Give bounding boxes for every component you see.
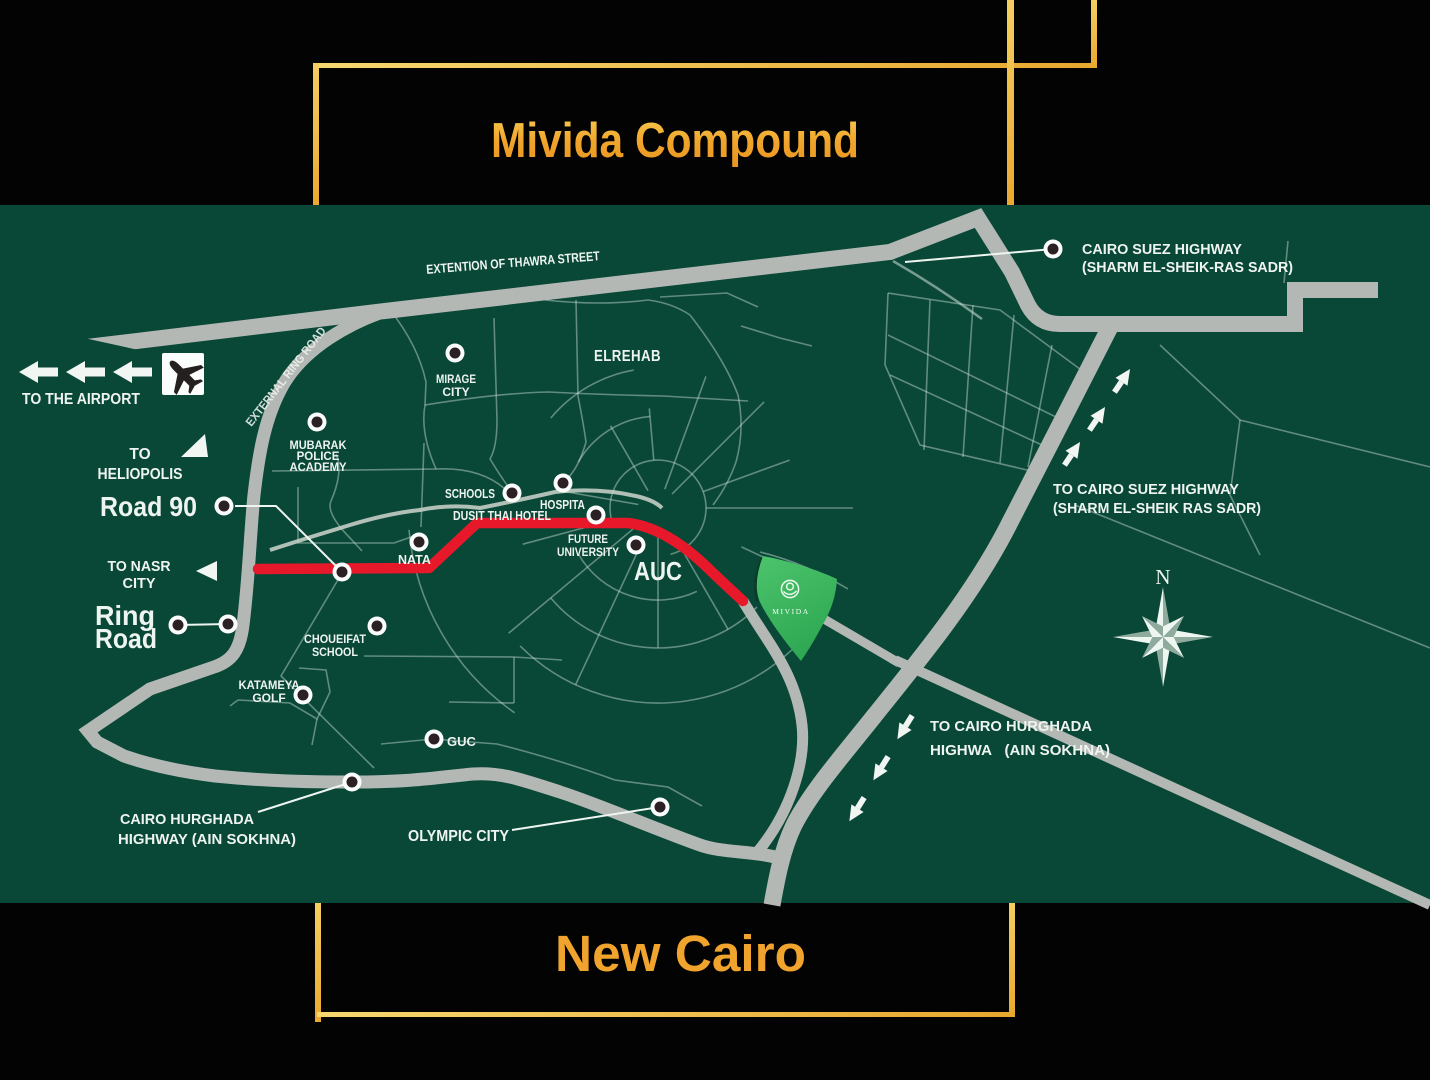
svg-text:N: N	[1155, 565, 1170, 589]
svg-text:MIVIDA: MIVIDA	[772, 607, 810, 616]
svg-text:HELIOPOLIS: HELIOPOLIS	[98, 466, 183, 483]
svg-text:CITY: CITY	[442, 385, 469, 399]
svg-text:UNIVERSITY: UNIVERSITY	[557, 545, 619, 559]
svg-text:NATA: NATA	[398, 553, 431, 567]
svg-text:Mivida Compound: Mivida Compound	[491, 114, 859, 168]
svg-text:TO NASR: TO NASR	[108, 559, 172, 575]
svg-text:CAIRO HURGHADA: CAIRO HURGHADA	[120, 811, 254, 828]
svg-text:TO: TO	[129, 446, 150, 463]
svg-text:KATAMEYA: KATAMEYA	[239, 678, 300, 692]
svg-text:CAIRO SUEZ HIGHWAY: CAIRO SUEZ HIGHWAY	[1082, 242, 1242, 258]
svg-text:HIGHWA (AIN SOKHNA): HIGHWA (AIN SOKHNA)	[930, 742, 1110, 759]
svg-text:CITY: CITY	[122, 576, 155, 592]
svg-text:Road: Road	[95, 623, 157, 654]
svg-text:New Cairo: New Cairo	[555, 925, 806, 982]
svg-text:TO CAIRO SUEZ HIGHWAY: TO CAIRO SUEZ HIGHWAY	[1053, 481, 1239, 498]
svg-text:Road 90: Road 90	[100, 491, 197, 522]
svg-text:ELREHAB: ELREHAB	[594, 348, 661, 365]
svg-text:DUSIT THAI HOTEL: DUSIT THAI HOTEL	[453, 509, 551, 523]
svg-text:MIRAGE: MIRAGE	[436, 372, 476, 386]
svg-text:OLYMPIC CITY: OLYMPIC CITY	[408, 828, 510, 845]
svg-text:SCHOOL: SCHOOL	[312, 645, 358, 659]
svg-text:SCHOOLS: SCHOOLS	[445, 487, 495, 501]
svg-text:GUC: GUC	[447, 734, 477, 749]
svg-text:GOLF: GOLF	[252, 691, 285, 705]
svg-text:CHOUEIFAT: CHOUEIFAT	[304, 632, 367, 646]
svg-text:(SHARM EL-SHEIK-RAS SADR): (SHARM EL-SHEIK-RAS SADR)	[1082, 260, 1293, 276]
svg-text:(SHARM EL-SHEIK RAS SADR): (SHARM EL-SHEIK RAS SADR)	[1053, 500, 1261, 517]
svg-text:HIGHWAY (AIN SOKHNA): HIGHWAY (AIN SOKHNA)	[118, 831, 296, 848]
svg-text:AUC: AUC	[634, 556, 682, 586]
svg-text:TO CAIRO HURGHADA: TO CAIRO HURGHADA	[930, 718, 1092, 735]
svg-text:ACADEMY: ACADEMY	[290, 462, 347, 474]
svg-text:FUTURE: FUTURE	[568, 532, 608, 546]
svg-text:TO THE AIRPORT: TO THE AIRPORT	[22, 391, 140, 408]
